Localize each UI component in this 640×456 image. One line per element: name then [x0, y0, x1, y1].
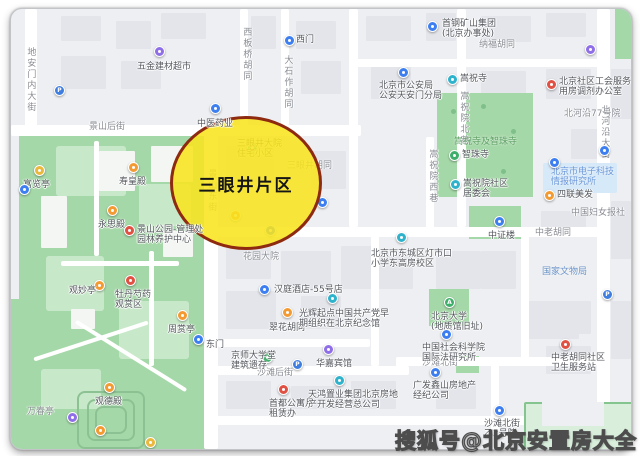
poi-label: 景山公园-管理处 园林养护中心 — [137, 225, 203, 246]
poi-label: 中证楼 — [488, 231, 515, 241]
poi-dot — [589, 48, 592, 51]
poi-marker-icon[interactable] — [128, 162, 139, 173]
watermark: 搜狐号@北京安置房大全 — [395, 425, 637, 455]
parking-icon[interactable]: P — [602, 289, 613, 300]
poi-marker-icon[interactable] — [549, 157, 560, 168]
poi-dot — [338, 379, 341, 382]
poi-marker-icon[interactable] — [323, 344, 334, 355]
poi-marker-icon[interactable] — [34, 165, 45, 176]
poi-marker-icon[interactable] — [449, 150, 460, 161]
poi-dot — [214, 107, 217, 110]
poi-dot — [548, 194, 551, 197]
poi-dot — [564, 343, 567, 346]
poi-marker-icon[interactable] — [282, 307, 293, 318]
poi-dot — [331, 297, 334, 300]
poi-dot — [158, 50, 161, 53]
poi-label: 五金建材超市 — [137, 62, 191, 72]
poi-marker-icon[interactable] — [259, 284, 270, 295]
poi-label: 中老胡同社区 卫生服务站 — [551, 353, 605, 374]
poi-marker-icon[interactable] — [560, 339, 571, 350]
poi-label: 观妙亭 — [69, 286, 96, 296]
poi-label: 永思殿 — [98, 220, 125, 230]
poi-dot — [38, 169, 41, 172]
poi-marker-icon[interactable] — [396, 232, 407, 243]
poi-marker-icon[interactable] — [427, 21, 438, 32]
poi-label: 牡丹芍药 观赏区 — [115, 290, 151, 311]
poi-marker-icon[interactable] — [278, 384, 289, 395]
poi-dot — [453, 154, 456, 157]
parking-icon[interactable]: P — [54, 85, 65, 96]
poi-dot — [149, 441, 152, 444]
poi-marker-icon[interactable] — [546, 79, 557, 90]
poi-marker-icon[interactable] — [398, 67, 409, 78]
poi-label: 北京社区工会服务 用房调剂办公室 — [559, 77, 631, 98]
poi-label: 周赏亭 — [168, 325, 195, 335]
poi-marker-icon[interactable] — [19, 184, 30, 195]
poi-dot — [431, 25, 434, 28]
poi-marker-icon[interactable] — [107, 205, 118, 216]
poi-label: 首钢矿山集团 (北京办事处) — [442, 19, 496, 40]
poi-dot — [132, 166, 135, 169]
poi-marker-icon[interactable] — [145, 437, 156, 448]
poi-label: 嵩祝寺 — [460, 74, 487, 84]
poi-label: 嵩祝院社区 居委会 — [463, 179, 508, 200]
poi-marker-icon[interactable] — [334, 375, 345, 386]
poi-dot — [553, 161, 556, 164]
poi-marker-icon[interactable] — [585, 44, 596, 55]
poi-marker-icon[interactable] — [104, 382, 115, 393]
poi-dot — [108, 386, 111, 389]
poi-label: 中国社会科学院 国际法研究所 — [422, 343, 485, 364]
poi-dot — [402, 71, 405, 74]
poi-label: 北京大学 (地质馆旧址) — [431, 312, 483, 333]
poi-label: 京师大学堂 建筑遗存 — [231, 351, 276, 372]
poi-dot — [603, 149, 606, 152]
poi-dot — [128, 229, 131, 232]
poi-label: 中医药业 — [197, 119, 233, 129]
poi-marker-icon[interactable] — [327, 293, 338, 304]
screenshot-stage: 地安门内大街景山后街西板桥胡同大石作胡同纳福胡同嵩祝院北巷景山东街嵩祝院西巷中老… — [0, 0, 640, 456]
poi-marker-icon[interactable] — [125, 275, 136, 286]
poi-marker-icon[interactable] — [67, 412, 78, 423]
poi-dot — [498, 220, 501, 223]
poi-dot — [434, 371, 437, 374]
poi-dot — [550, 83, 553, 86]
poi-dot — [23, 188, 26, 191]
poi-marker-icon[interactable] — [193, 334, 204, 345]
map-canvas[interactable]: 地安门内大街景山后街西板桥胡同大石作胡同纳福胡同嵩祝院北巷景山东街嵩祝院西巷中老… — [10, 8, 632, 450]
poi-label: 寿皇殿 — [119, 177, 146, 187]
poi-label: 观德殿 — [95, 397, 122, 407]
poi-marker-icon[interactable] — [154, 46, 165, 57]
poi-label: 北京市东城区灯市口 小学东高房校区 — [371, 249, 452, 270]
poi-marker-icon[interactable] — [210, 103, 221, 114]
poi-marker-icon[interactable] — [599, 145, 610, 156]
poi-dot — [286, 311, 289, 314]
poi-marker-icon[interactable]: A — [444, 297, 455, 308]
poi-dot — [327, 348, 330, 351]
poi-dot — [445, 333, 448, 336]
poi-label: 智珠寺 — [462, 150, 489, 160]
poi-dot — [288, 39, 291, 42]
poi-dot — [451, 78, 454, 81]
poi-marker-icon[interactable] — [284, 35, 295, 46]
poi-marker-icon[interactable] — [441, 329, 452, 340]
poi-dot — [129, 279, 132, 282]
poi-dot — [197, 338, 200, 341]
poi-dot — [263, 288, 266, 291]
poi-dot — [282, 388, 285, 391]
poi-label: 东门 — [206, 340, 224, 350]
poi-label: 天鸿置业集团北京房地 产开发经营总公司 — [308, 390, 398, 411]
map-poi-layer: 五金建材超市中医药业P西门首钢矿山集团 (北京办事处)北京市公安局 公安天安门分… — [11, 9, 631, 449]
poi-dot — [71, 416, 74, 419]
poi-label: 北京市公安局 公安天安门分局 — [379, 81, 442, 102]
poi-label: 广发鑫山房地产 经纪公司 — [413, 381, 476, 402]
poi-dot — [454, 183, 457, 186]
poi-marker-icon[interactable] — [124, 225, 135, 236]
poi-dot — [400, 236, 403, 239]
poi-label: 光辉起点中国共产党早 期组织在北京纪念馆 — [299, 309, 389, 330]
poi-marker-icon[interactable] — [494, 216, 505, 227]
poi-dot — [111, 209, 114, 212]
poi-dot — [498, 409, 501, 412]
poi-marker-icon[interactable] — [447, 74, 458, 85]
poi-dot — [181, 314, 184, 317]
poi-dot — [98, 284, 101, 287]
parking-icon[interactable]: P — [292, 359, 303, 370]
poi-dot — [99, 429, 102, 432]
poi-marker-icon[interactable] — [494, 405, 505, 416]
poi-label: 四联美发 — [557, 190, 593, 200]
poi-label: 华嘉宾馆 — [316, 359, 352, 369]
poi-label: 西门 — [296, 35, 314, 45]
poi-marker-icon[interactable] — [544, 190, 555, 201]
poi-marker-icon[interactable] — [430, 367, 441, 378]
poi-marker-icon[interactable] — [177, 310, 188, 321]
poi-marker-icon[interactable] — [95, 425, 106, 436]
poi-marker-icon[interactable] — [450, 179, 461, 190]
